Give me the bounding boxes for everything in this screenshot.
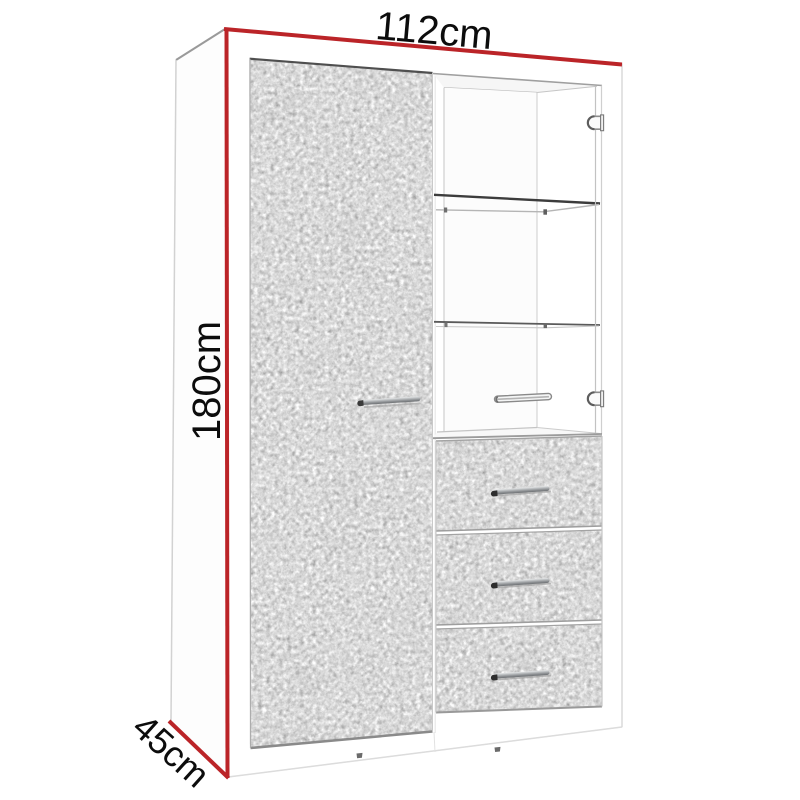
svg-text:180cm: 180cm xyxy=(185,321,229,441)
